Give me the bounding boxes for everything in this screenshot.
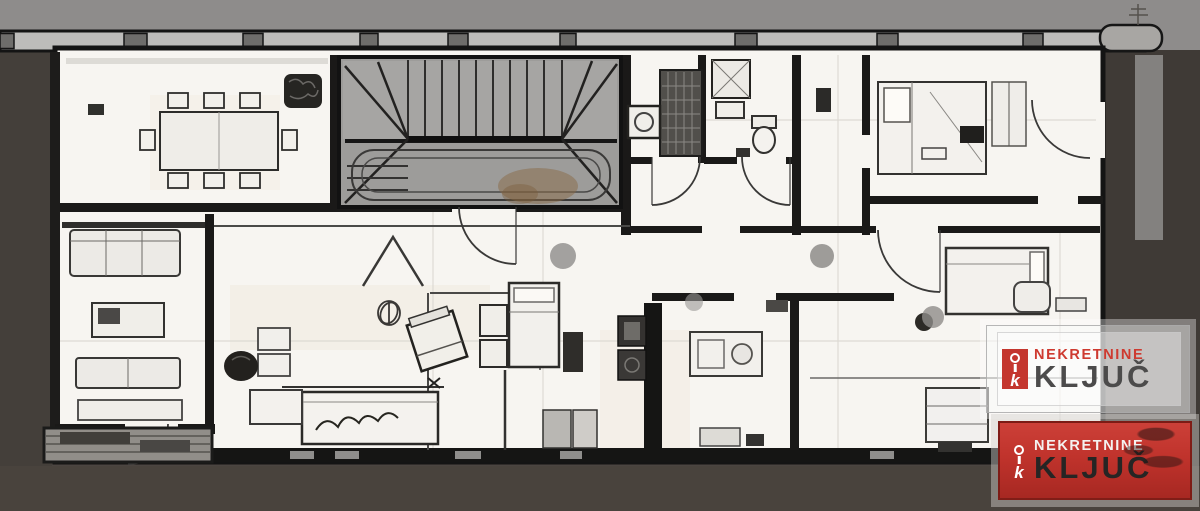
hall-fixture — [816, 88, 831, 112]
balcony — [44, 428, 212, 462]
kitchen-counter — [66, 58, 328, 64]
washing-machine — [628, 106, 660, 138]
reading-chair — [1014, 282, 1050, 312]
plant — [284, 74, 322, 108]
wall-fixture — [88, 104, 104, 115]
floor-plan-screenshot: k NEKRETNINE KLJUČ k NEKRETNINE KLJUČ — [0, 0, 1200, 511]
sofa — [70, 230, 180, 276]
key-icon: k — [1006, 441, 1032, 481]
closet-door — [543, 410, 571, 448]
sink — [716, 102, 744, 118]
bench — [78, 400, 182, 420]
key-ring — [1014, 445, 1024, 455]
key-letter: k — [1002, 372, 1028, 389]
hatched-closet — [660, 70, 702, 156]
staircase — [339, 57, 621, 207]
wardrobe-units — [480, 305, 507, 367]
key-ring — [1010, 353, 1020, 363]
watermark-stamp: k NEKRETNINE KLJUČ — [998, 421, 1192, 500]
watermark-card-inner: k NEKRETNINE KLJUČ — [997, 332, 1181, 406]
plant-blob — [224, 351, 258, 381]
roof-column — [1100, 25, 1162, 51]
stamp-smear — [1114, 425, 1184, 471]
armchair — [250, 390, 302, 424]
neighbor-structure — [1135, 55, 1163, 240]
brand-name-secondary: KLJUČ — [1034, 363, 1152, 391]
dresser — [926, 388, 988, 442]
brand-text: NEKRETNINE KLJUČ — [1034, 348, 1152, 391]
desk-chair — [732, 344, 752, 364]
pillow — [884, 88, 910, 122]
watermark-card: k NEKRETNINE KLJUČ — [986, 325, 1190, 413]
toilet — [753, 127, 775, 153]
key-icon: k — [1002, 349, 1028, 389]
key-letter: k — [1006, 464, 1032, 481]
daybed — [302, 392, 438, 444]
